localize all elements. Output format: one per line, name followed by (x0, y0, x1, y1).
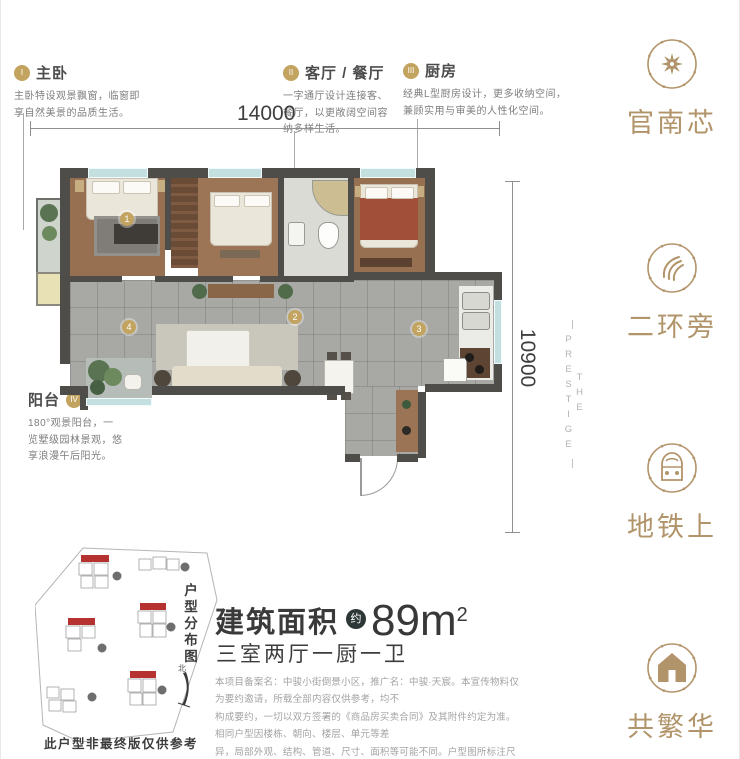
wall (348, 178, 354, 282)
pillow (391, 187, 414, 199)
sidebar-item-label: 地铁上 (602, 505, 740, 544)
annotation-line: 纳多样生活。 (283, 122, 423, 139)
sidebar-item-metro: 地铁上 (602, 440, 740, 544)
siteplan-caption: 此户型非最终版仅供参考 (44, 733, 198, 752)
kitchen-sink (462, 292, 490, 310)
bath-sink (288, 222, 305, 246)
building-cluster (139, 557, 190, 572)
floorplan: 1 2 3 4 (60, 168, 504, 508)
wall (260, 276, 354, 282)
siteplan-title: 户型分布图 (179, 583, 199, 666)
watermark-dash (572, 320, 573, 329)
annotation-line: 经典L型厨房设计，更多收纳空间， (403, 87, 593, 104)
annotation-numeral: III (403, 63, 419, 79)
annotation-kitchen: III 厨房 经典L型厨房设计，更多收纳空间， 兼顾实用与审美的人性化空间。 (403, 60, 593, 120)
annotation-title: 厨房 (425, 60, 457, 81)
building-cluster (66, 618, 107, 653)
stove-burner (475, 365, 484, 374)
annotation-master-bedroom: I 主卧 主卧特设观景飘窗，临窗即 享自然美景的品质生活。 (14, 62, 164, 122)
sidebar-item-label: 官南芯 (602, 101, 740, 140)
dimension-tick (499, 121, 500, 136)
flyer-page: I 主卧 主卧特设观景飘窗，临窗即 享自然美景的品质生活。 II 客厅 / 餐厅… (0, 0, 740, 759)
cabinet-decor (402, 400, 411, 409)
wall (425, 168, 435, 280)
watermark-text: THE PRESTIGE (563, 333, 585, 455)
sofa-side-table (154, 370, 171, 387)
dimension-tick (30, 121, 31, 136)
window (360, 168, 416, 178)
bay-plant (40, 204, 58, 222)
area-sup: 2 (457, 604, 468, 626)
toilet (318, 222, 339, 249)
entry-door-arc (360, 458, 398, 496)
pillow (365, 187, 388, 199)
bedroom2-bench (220, 250, 260, 258)
disclaimer: 本项目备案名：中骏小街倒景小区，推广名：中骏·天宸。本宣传物料仅为要约邀请，所载… (215, 674, 523, 759)
bedroom3-blanket (360, 198, 418, 240)
window (208, 168, 262, 178)
room-marker-balcony: 4 (122, 320, 136, 334)
disclaimer-line: 构成要约，一切以双方签署的《商品房买卖合同》及其附件约定为准。相同户型因楼栋、朝… (215, 709, 523, 744)
dimension-width-label: 14000 (237, 102, 295, 126)
dimension-tick (505, 181, 520, 182)
left-edge-line (0, 0, 1, 759)
sidebar-item-location: 官南芯 (602, 36, 740, 140)
master-dresser (114, 224, 158, 244)
wall (425, 384, 502, 392)
annotation-numeral: I (14, 65, 30, 81)
balcony-plant (90, 380, 105, 395)
pillow (123, 181, 151, 194)
area-block: 建筑面积 约 89m2 (215, 593, 468, 643)
dimension-height-label: 10900 (515, 327, 539, 389)
room-marker-master: 1 (120, 212, 134, 226)
nightstand (355, 186, 361, 197)
wall (60, 168, 70, 364)
nightstand (158, 180, 165, 192)
pillow (214, 195, 240, 207)
wardrobe (171, 178, 198, 268)
annotation-line: 兼顾实用与审美的人性化空间。 (403, 104, 593, 121)
wall (397, 454, 418, 462)
stove-burner (465, 353, 474, 362)
watermark: THE PRESTIGE (563, 320, 581, 468)
annotation-line: 享自然美景的品质生活。 (14, 106, 164, 123)
disclaimer-line: 本项目备案名：中骏小街倒景小区，推广名：中骏·天宸。本宣传物料仅为要约邀请，所载… (215, 674, 523, 709)
wall (354, 272, 435, 280)
wall (425, 272, 502, 280)
house-icon (644, 640, 700, 696)
sidebar-item-label: 二环旁 (602, 305, 740, 344)
dining-chair (327, 352, 337, 360)
building-cluster (138, 603, 176, 637)
bedroom3-dresser (360, 258, 412, 267)
window (494, 300, 502, 364)
swirl-icon (644, 240, 700, 296)
living-plant (192, 284, 207, 299)
coffee-table (186, 330, 250, 370)
layout-subtitle: 三室两厅一厨一卫 (216, 638, 408, 668)
living-plant (278, 284, 293, 299)
sidebar-item-label: 共繁华 (602, 705, 740, 744)
balcony-plant (104, 368, 122, 386)
kitchen-sink (462, 312, 490, 330)
sofa-side-table (284, 370, 301, 387)
building-cluster (79, 555, 122, 588)
train-icon (644, 440, 700, 496)
dimension-width-line (30, 128, 500, 129)
room-marker-living: 2 (288, 310, 302, 324)
sidebar-item-ring-road: 二环旁 (602, 240, 740, 344)
balcony-chair (124, 374, 142, 390)
sidebar-item-prosperity: 共繁华 (602, 640, 740, 744)
room-marker-kitchen: 3 (412, 322, 426, 336)
area-prefix: 建筑面积 (215, 603, 339, 643)
disclaimer-line: 异，局部外观、结构、管道、尺寸、面积等可能不同。户型图所标注尺寸单位为：毫米。开… (215, 744, 523, 759)
wall (418, 392, 426, 458)
wall (70, 276, 122, 282)
area-value: 89m2 (371, 593, 468, 643)
watermark-dash (572, 459, 573, 468)
annotation-title: 主卧 (36, 62, 68, 83)
dining-chair (341, 352, 351, 360)
annotation-title: 阳台 (28, 389, 60, 410)
wall (152, 386, 345, 395)
fridge (443, 358, 467, 382)
annotation-line: 主卧特设观景飘窗，临窗即 (14, 89, 164, 106)
annotation-numeral: II (283, 65, 299, 81)
dimension-tick (505, 532, 520, 533)
leader-line-master (23, 113, 24, 230)
wall (155, 276, 233, 282)
annotation-line: 一字通厅设计连接客、 (283, 89, 423, 106)
pillow (244, 195, 270, 207)
cabinet-decor (402, 426, 411, 435)
nightstand (75, 180, 84, 192)
wall (278, 178, 284, 282)
building-cluster (47, 687, 97, 712)
balcony-glazing (86, 398, 152, 406)
pillow (92, 181, 120, 194)
approx-badge: 约 (346, 609, 366, 629)
compass-star-icon (644, 36, 700, 92)
wall (165, 178, 171, 250)
building-cluster (128, 671, 167, 705)
annotation-line: 餐厅，以更敞阔空间容 (283, 106, 423, 123)
bay-plant (42, 226, 57, 241)
nightstand (418, 186, 424, 197)
annotation-title: 客厅 / 餐厅 (305, 62, 385, 83)
window (88, 168, 148, 178)
dimension-height-line (512, 181, 513, 533)
wall (345, 454, 360, 462)
tv-console (208, 284, 274, 298)
